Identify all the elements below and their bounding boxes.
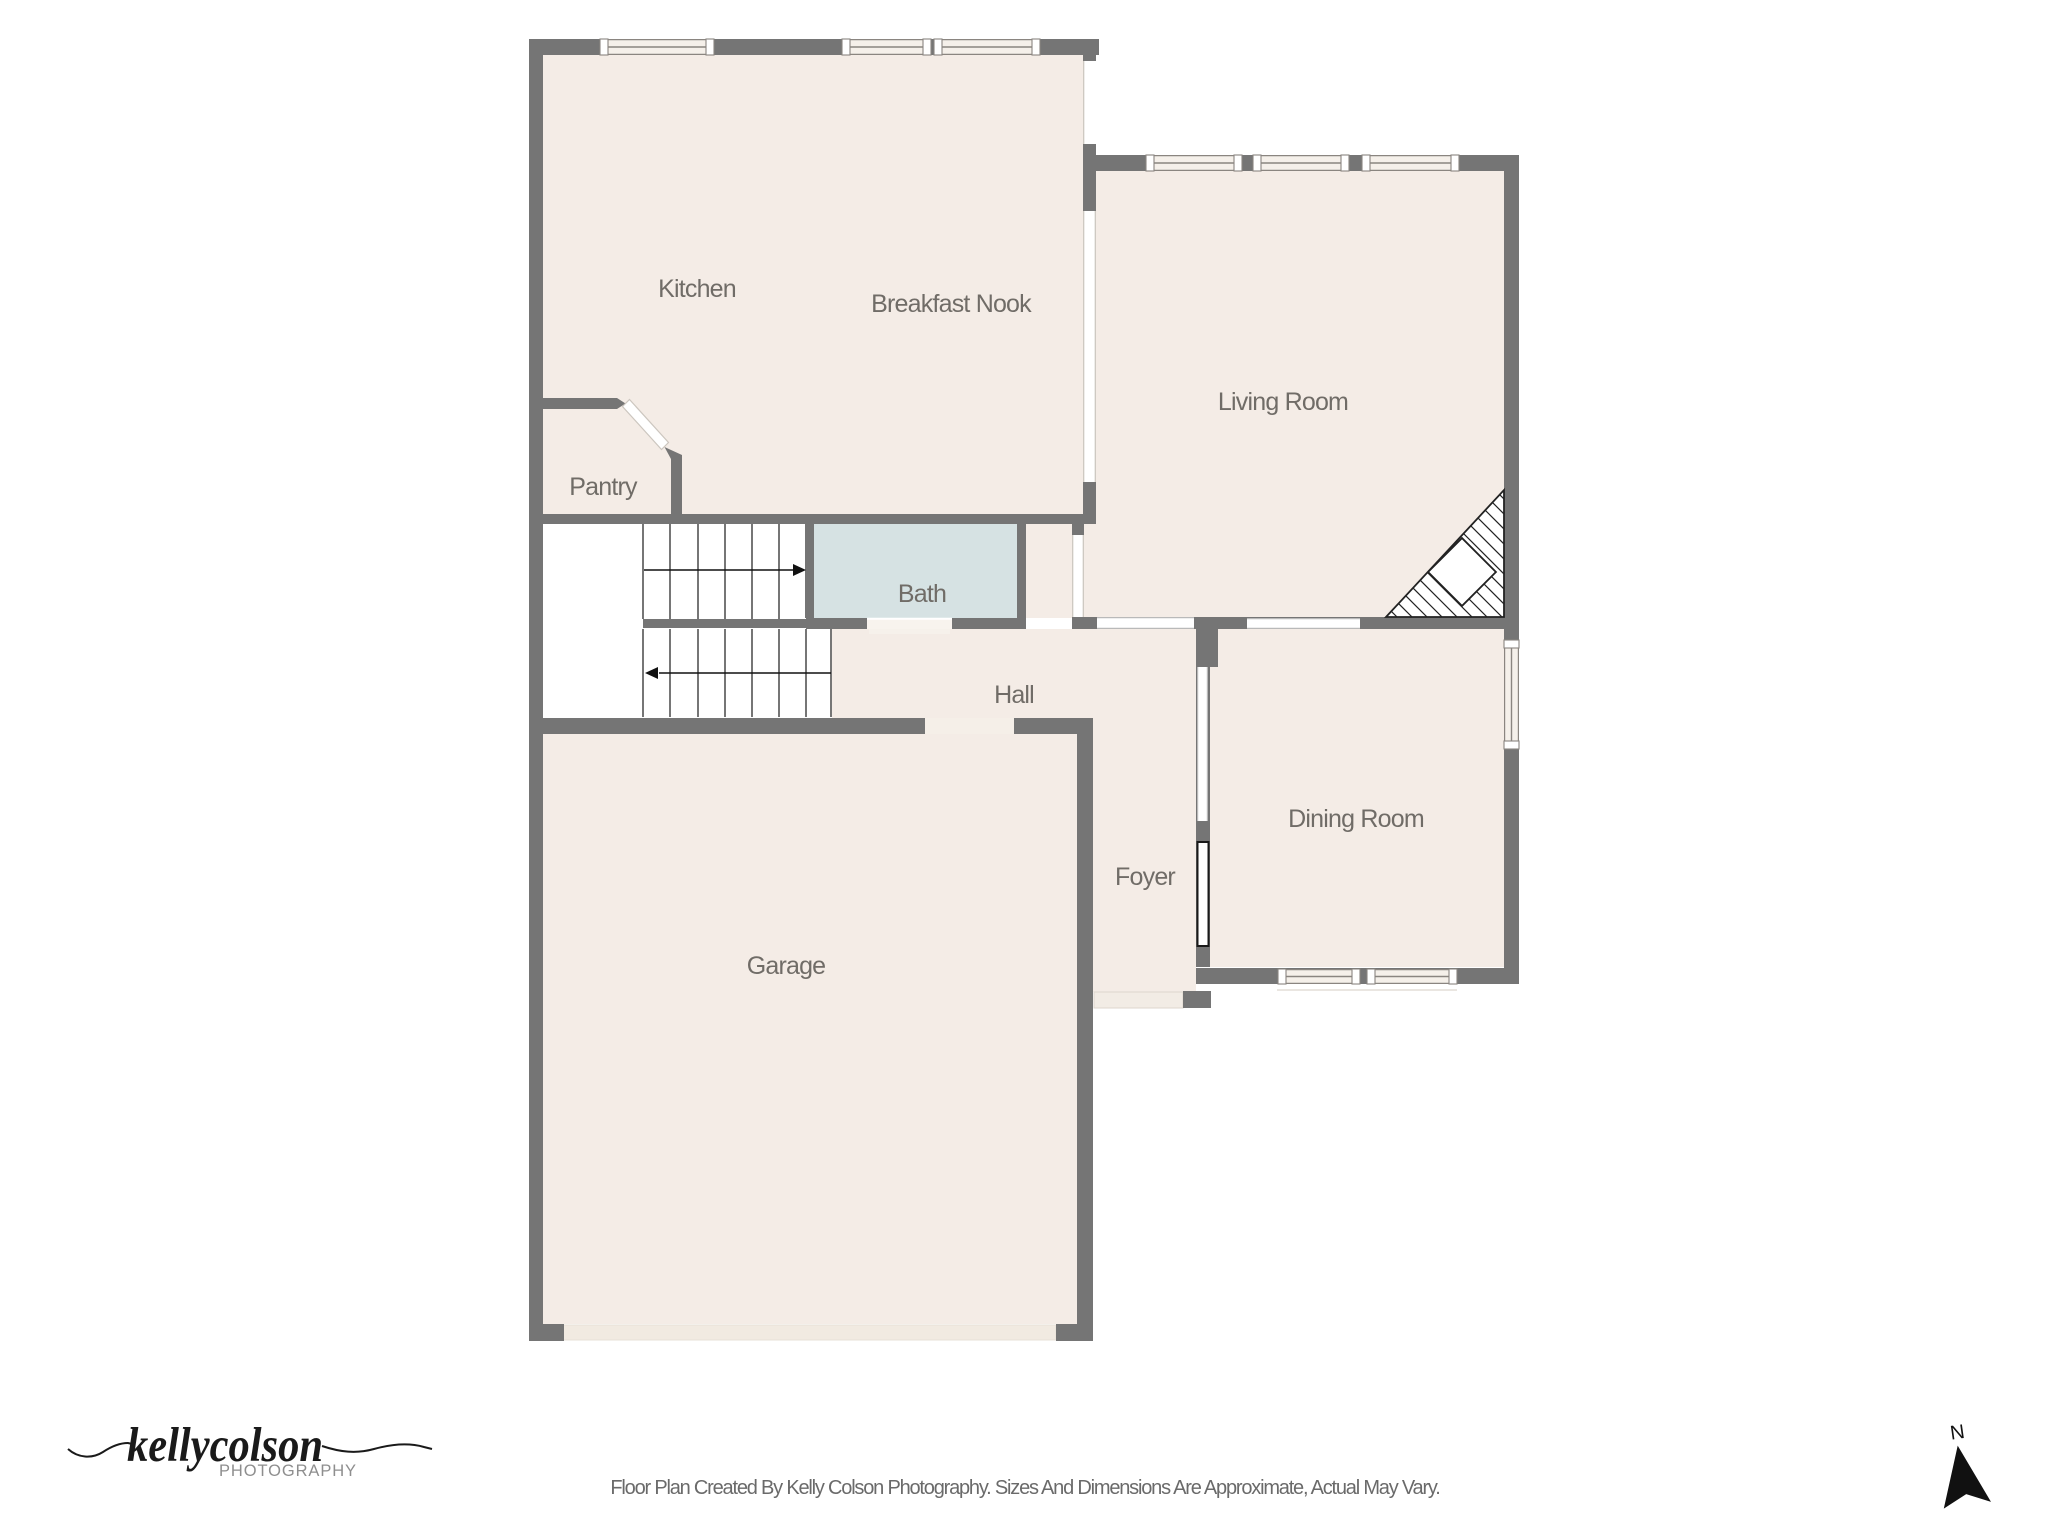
svg-text:Foyer: Foyer xyxy=(1115,863,1175,891)
svg-text:Pantry: Pantry xyxy=(569,473,638,501)
svg-text:Dining Room: Dining Room xyxy=(1288,805,1424,833)
svg-text:Kitchen: Kitchen xyxy=(658,275,736,303)
svg-text:Breakfast Nook: Breakfast Nook xyxy=(871,290,1032,318)
svg-text:PHOTOGRAPHY: PHOTOGRAPHY xyxy=(219,1462,357,1480)
svg-text:Garage: Garage xyxy=(747,952,826,980)
svg-text:Bath: Bath xyxy=(898,580,946,608)
svg-text:Floor Plan Created By Kelly Co: Floor Plan Created By Kelly Colson Photo… xyxy=(610,1477,1439,1499)
svg-text:Living Room: Living Room xyxy=(1218,388,1348,416)
svg-text:N: N xyxy=(1949,1421,1966,1445)
svg-text:Hall: Hall xyxy=(994,681,1034,709)
